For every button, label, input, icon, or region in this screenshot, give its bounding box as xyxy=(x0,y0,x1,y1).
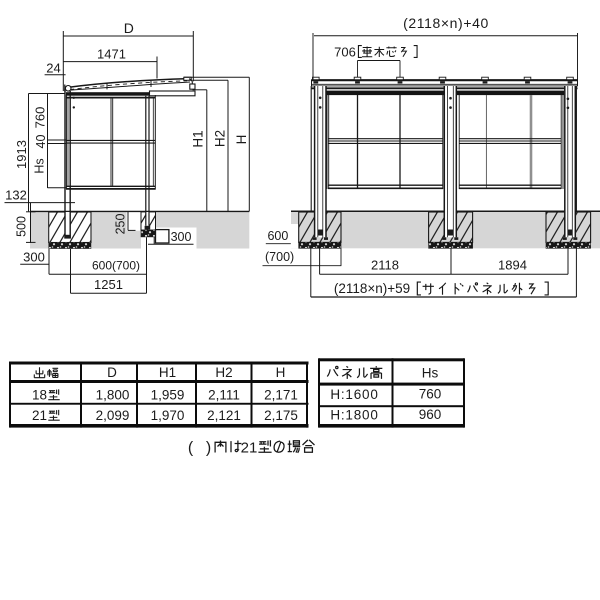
svg-text:18: 18 xyxy=(32,387,47,402)
svg-text:1894: 1894 xyxy=(498,257,527,272)
svg-text:21: 21 xyxy=(32,408,47,423)
svg-text:D: D xyxy=(124,20,134,36)
svg-text:2,111: 2,111 xyxy=(208,387,240,402)
svg-text:500: 500 xyxy=(15,216,29,237)
svg-text:H1: H1 xyxy=(159,365,176,380)
svg-text:706: 706 xyxy=(334,45,356,60)
svg-text:D: D xyxy=(107,365,117,380)
svg-text:(2118×n)+40: (2118×n)+40 xyxy=(403,15,489,31)
svg-text:2,171: 2,171 xyxy=(264,387,298,402)
svg-text:600(700): 600(700) xyxy=(92,258,140,272)
svg-text:Hs: Hs xyxy=(33,158,47,173)
svg-text:132: 132 xyxy=(5,188,27,203)
svg-text:H: H xyxy=(276,365,286,380)
svg-text:H2: H2 xyxy=(215,365,232,380)
svg-text:H:1800: H:1800 xyxy=(330,408,378,423)
svg-text:H1: H1 xyxy=(190,130,205,147)
svg-text:1471: 1471 xyxy=(97,46,126,61)
svg-text:H2: H2 xyxy=(212,130,227,147)
svg-text:1,800: 1,800 xyxy=(96,387,130,402)
svg-text:40: 40 xyxy=(34,135,48,149)
svg-text:1,959: 1,959 xyxy=(151,387,185,402)
svg-text:960: 960 xyxy=(419,407,442,422)
svg-text:(2118×n)+59: (2118×n)+59 xyxy=(334,281,410,296)
svg-text:1913: 1913 xyxy=(14,140,29,169)
svg-text:300: 300 xyxy=(23,249,45,264)
svg-text:300: 300 xyxy=(171,230,192,244)
svg-text:1,970: 1,970 xyxy=(151,408,185,423)
svg-text:): ) xyxy=(206,440,211,457)
svg-text:760: 760 xyxy=(419,386,442,401)
svg-text:H:1600: H:1600 xyxy=(330,387,378,402)
svg-text:600: 600 xyxy=(267,229,288,243)
svg-text:2,099: 2,099 xyxy=(96,408,130,423)
svg-text:24: 24 xyxy=(46,60,60,75)
svg-text:H: H xyxy=(234,135,249,145)
svg-text:2,121: 2,121 xyxy=(207,408,241,423)
svg-text:2,175: 2,175 xyxy=(264,408,298,423)
svg-text:1251: 1251 xyxy=(94,277,123,292)
svg-text:21: 21 xyxy=(241,440,258,457)
svg-text:2118: 2118 xyxy=(371,257,399,272)
svg-text:(700): (700) xyxy=(265,250,294,264)
svg-text:760: 760 xyxy=(33,107,48,129)
svg-text:Hs: Hs xyxy=(422,366,439,381)
svg-text:250: 250 xyxy=(113,214,127,235)
svg-text:(: ( xyxy=(188,440,194,457)
